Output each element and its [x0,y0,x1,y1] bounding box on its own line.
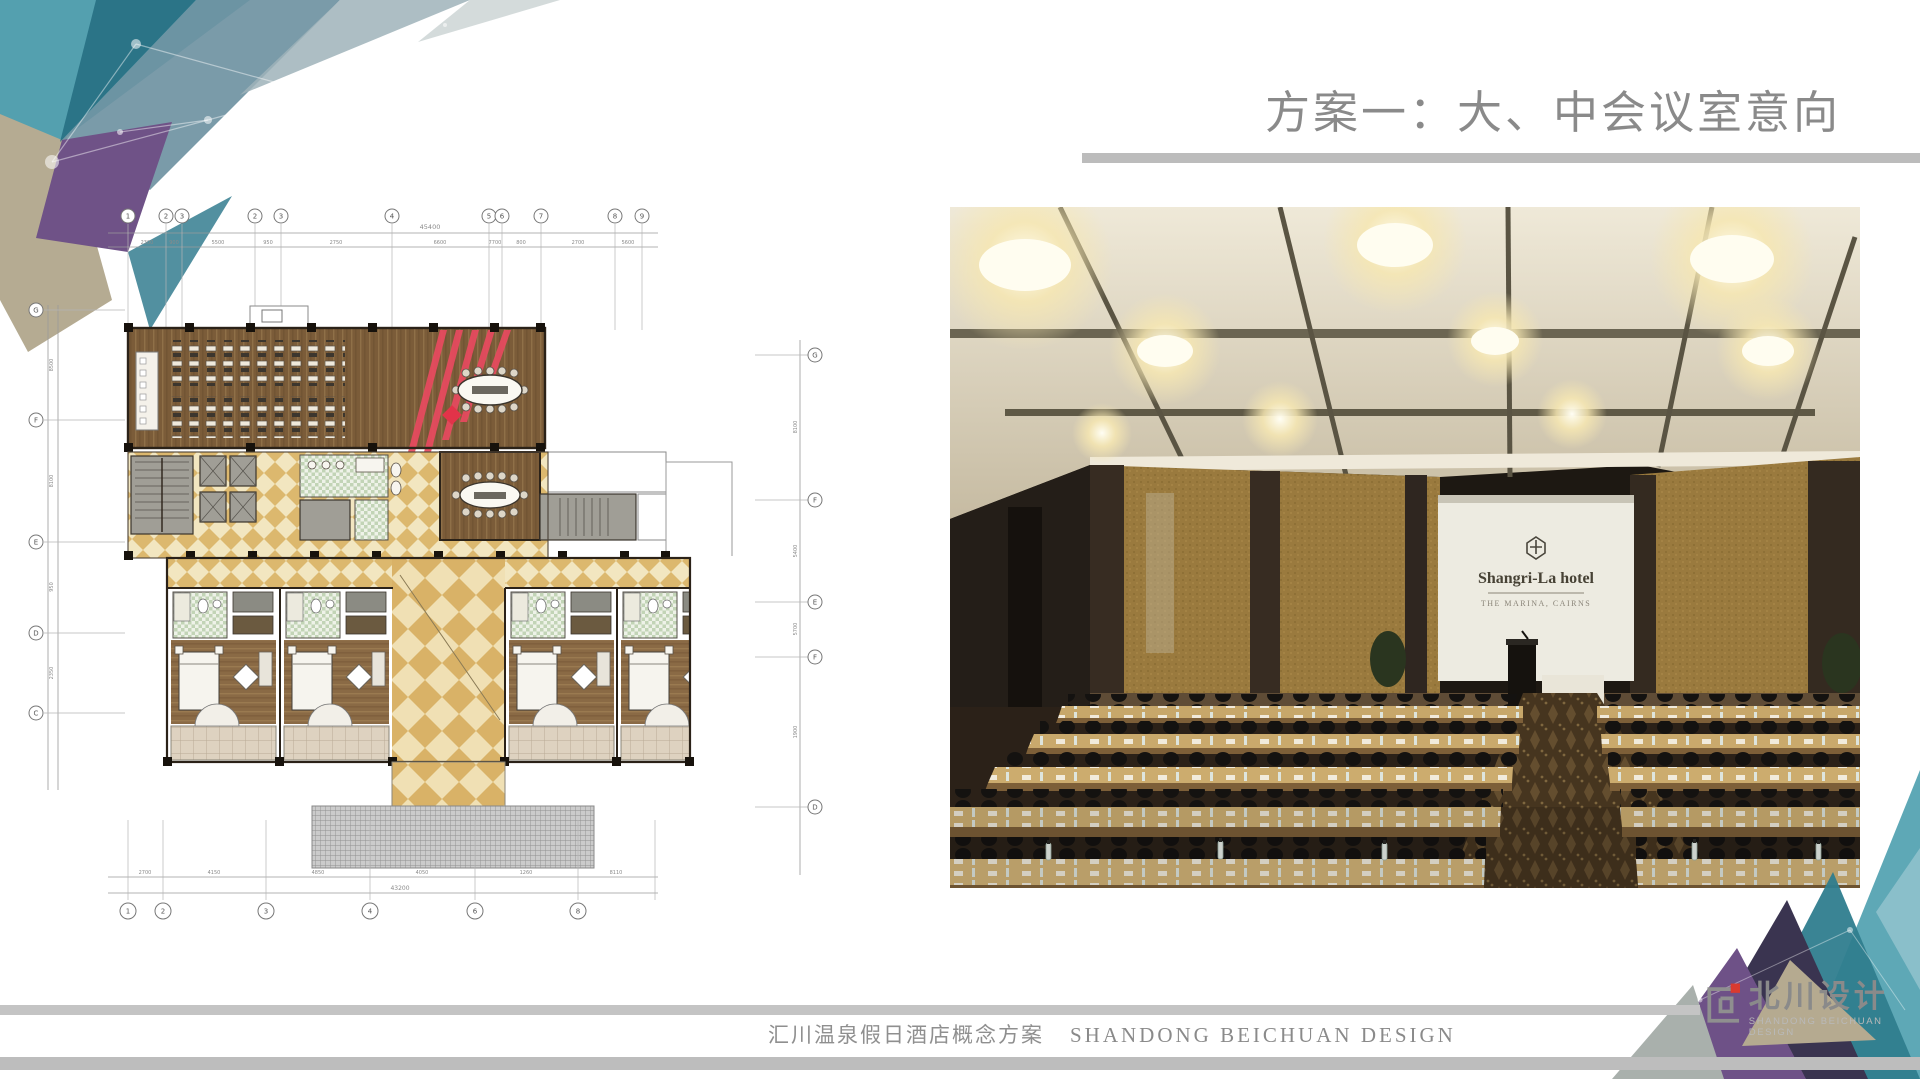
stage-podium [136,352,158,430]
meeting-room-oval-2 [440,452,540,540]
svg-text:950: 950 [49,582,55,592]
svg-text:5700: 5700 [793,623,799,636]
svg-text:1900: 1900 [793,726,799,739]
svg-text:2700: 2700 [139,870,152,876]
svg-text:D: D [812,804,817,812]
classroom-chairs-block [170,396,345,438]
svg-text:2300: 2300 [141,240,154,246]
floor-plan: 1 2 3 2 3 4 5 6 7 8 9 45400 2300 900 550… [20,188,850,933]
svg-text:3: 3 [279,213,283,221]
svg-text:800: 800 [516,240,526,246]
svg-text:4150: 4150 [208,870,221,876]
footer: 汇川温泉假日酒店概念方案SHANDONG BEICHUAN DESIGN [768,1019,1456,1049]
footer-upper-bar [0,1005,1700,1015]
slide-title: 方案一：大、中会议室意向 [1265,76,1810,141]
grid-dimensions-right: G F E F D 8100 5400 5700 1900 [755,340,822,875]
footer-company-name: SHANDONG BEICHUAN DESIGN [1070,1023,1456,1047]
footer-project-name: 汇川温泉假日酒店概念方案 [768,1023,1044,1047]
classroom-chairs-block [170,340,345,386]
beichuan-logo-icon [1700,980,1743,1028]
svg-text:E: E [34,539,38,547]
oval-conference-table [452,367,528,413]
svg-text:8500: 8500 [49,359,55,372]
svg-text:43200: 43200 [390,885,409,892]
plant [1370,631,1406,687]
screen-brand-subtext: THE MARINA, CAIRNS [1481,599,1591,608]
svg-text:8: 8 [576,908,580,916]
svg-text:5400: 5400 [793,545,799,558]
svg-text:4850: 4850 [312,870,325,876]
svg-text:E: E [813,599,817,607]
svg-text:1: 1 [126,213,130,221]
entry-vestibule [250,306,308,328]
title-underline-bar [1082,153,1920,163]
svg-text:2: 2 [253,213,257,221]
side-terrace-outline [666,462,732,558]
stair-core-left [131,456,193,534]
svg-text:F: F [813,497,817,505]
svg-text:F: F [34,417,38,425]
svg-text:1: 1 [126,908,130,916]
svg-text:8100: 8100 [49,475,55,488]
svg-text:8110: 8110 [610,870,623,876]
svg-text:5500: 5500 [212,240,225,246]
grid-dimensions-left: G F E D C 8500 8100 950 2350 [29,303,125,790]
svg-text:2700: 2700 [572,240,585,246]
svg-text:2350: 2350 [49,667,55,680]
svg-text:4: 4 [390,213,395,221]
grid-dimensions-top: 1 2 3 2 3 4 5 6 7 8 9 45400 2300 900 550… [108,209,658,330]
logo-company-name: 北川设计 [1749,980,1920,1014]
svg-text:7: 7 [539,213,543,221]
entrance-terrace [312,762,594,868]
footer-lower-bar [0,1057,1920,1070]
svg-text:3: 3 [264,908,268,916]
svg-text:2750: 2750 [330,240,343,246]
stair-core-right [540,494,666,540]
svg-text:3: 3 [180,213,184,221]
svg-text:D: D [33,630,38,638]
svg-text:950: 950 [263,240,273,246]
svg-text:G: G [33,307,38,315]
svg-text:6600: 6600 [434,240,447,246]
svg-text:C: C [34,710,39,718]
svg-text:1260: 1260 [520,870,533,876]
svg-text:5600: 5600 [622,240,635,246]
svg-text:4: 4 [368,908,373,916]
svg-text:6: 6 [473,908,478,916]
logo-red-accent [1731,984,1740,993]
presentation-slide: 方案一：大、中会议室意向 [0,0,1920,1079]
screen-brand-text: Shangri-La hotel [1478,570,1595,587]
svg-text:5: 5 [487,213,491,221]
building-plan [124,306,749,868]
company-logo: 北川设计 SHANDONG BEICHUAN DESIGN [1700,980,1920,1038]
svg-text:900: 900 [169,240,179,246]
restrooms [300,455,401,540]
svg-text:7700: 7700 [489,240,502,246]
svg-text:G: G [812,352,817,360]
svg-text:8: 8 [613,213,617,221]
svg-text:8100: 8100 [793,421,799,434]
svg-text:F: F [813,654,817,662]
svg-text:45400: 45400 [420,223,441,231]
logo-company-subtitle: SHANDONG BEICHUAN DESIGN [1749,1016,1920,1038]
svg-text:6: 6 [500,213,505,221]
svg-text:4050: 4050 [416,870,429,876]
svg-text:2: 2 [161,908,165,916]
svg-text:9: 9 [640,213,644,221]
svg-text:2: 2 [164,213,168,221]
